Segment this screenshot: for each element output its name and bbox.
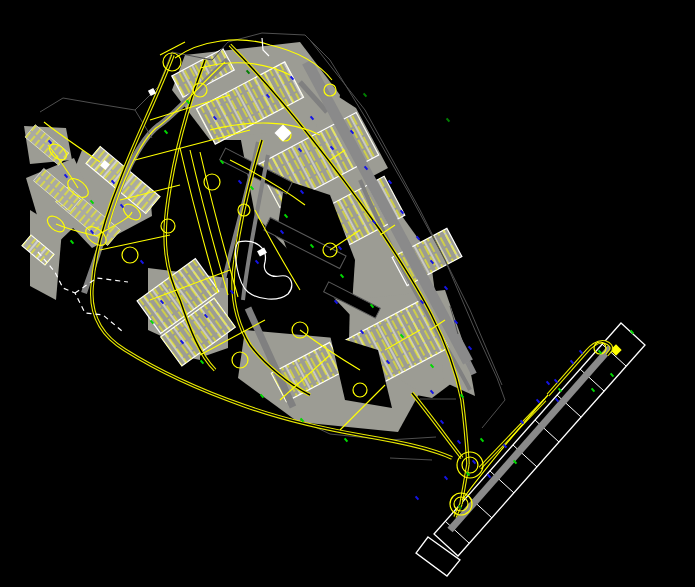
airport-layout-drawing[interactable] <box>0 0 695 587</box>
cad-model-space[interactable] <box>0 0 695 587</box>
